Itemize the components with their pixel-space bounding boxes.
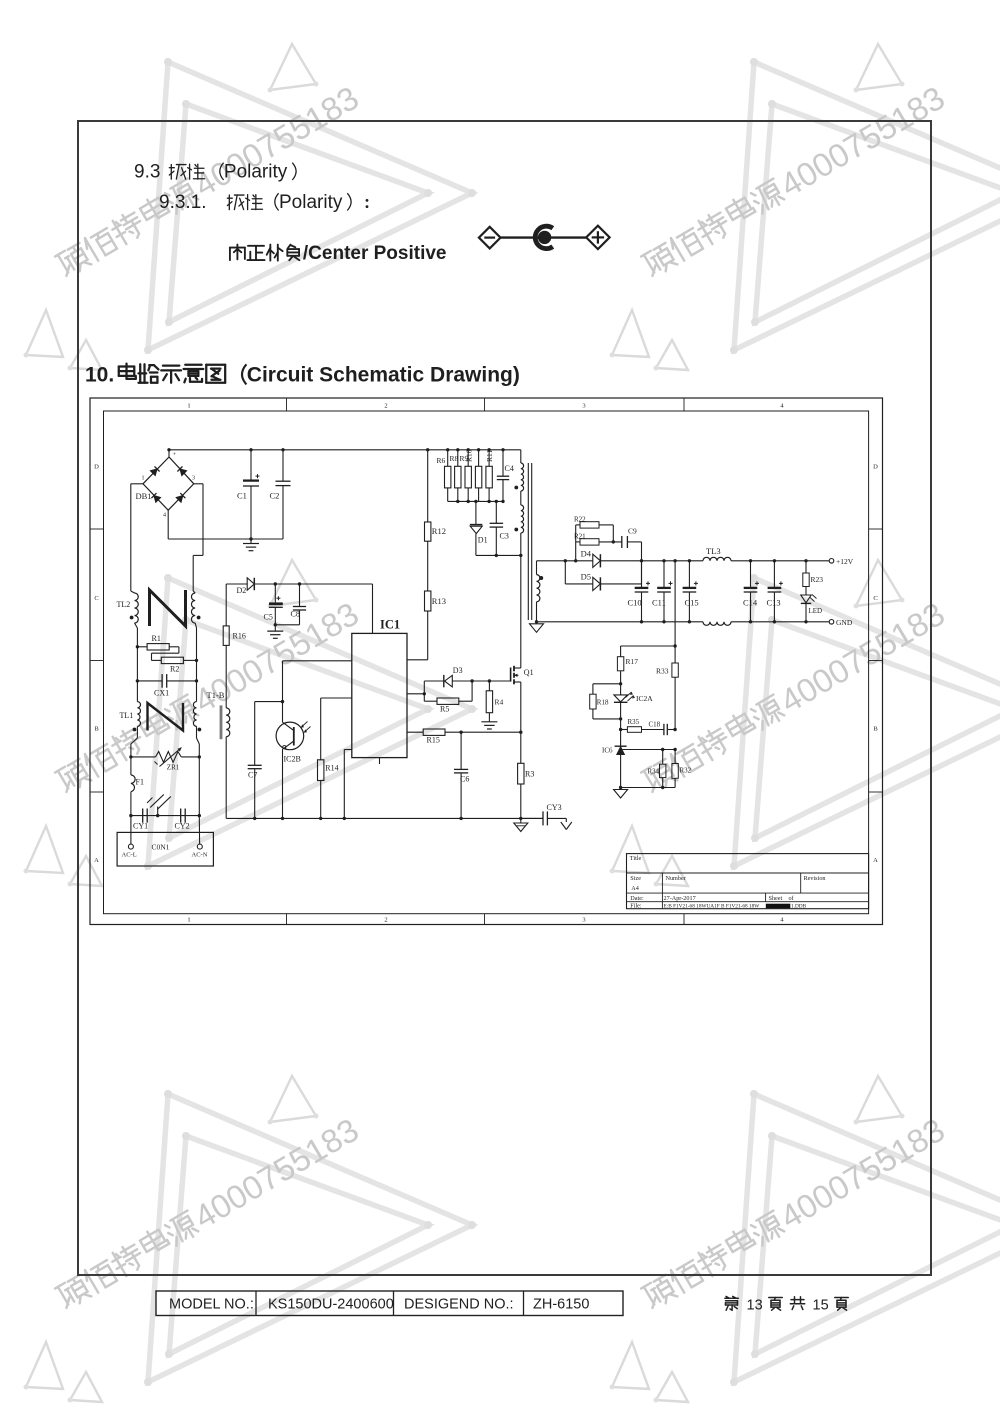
svg-text:4000755183: 4000755183 — [188, 1111, 365, 1236]
svg-text:of: of — [789, 895, 795, 902]
svg-text:C15: C15 — [685, 598, 699, 608]
svg-text:CY3: CY3 — [547, 803, 562, 812]
svg-text:Polarity: Polarity — [279, 192, 343, 213]
svg-text:C11: C11 — [652, 598, 666, 608]
svg-text:D2: D2 — [237, 586, 247, 595]
svg-text:2: 2 — [384, 402, 387, 409]
svg-text:Circuit Schematic Drawing): Circuit Schematic Drawing) — [247, 364, 520, 387]
svg-text:R15: R15 — [427, 736, 440, 745]
svg-text:+: + — [173, 451, 177, 458]
svg-text:4000755183: 4000755183 — [774, 1111, 951, 1236]
svg-text:R32: R32 — [680, 767, 692, 775]
svg-text:15: 15 — [813, 1298, 829, 1314]
svg-text:3: 3 — [582, 917, 585, 924]
svg-text:GND: GND — [836, 618, 853, 627]
svg-text:C14: C14 — [743, 598, 758, 608]
svg-text:Date:: Date: — [630, 895, 644, 902]
svg-text:F1: F1 — [136, 778, 144, 787]
svg-text:C10: C10 — [628, 598, 642, 608]
svg-text:AC-L: AC-L — [122, 852, 137, 859]
svg-text:CX1: CX1 — [154, 689, 169, 698]
svg-text:R13: R13 — [432, 596, 446, 606]
svg-text:D1: D1 — [478, 536, 488, 545]
svg-text:TL1: TL1 — [120, 711, 134, 720]
svg-text:R14: R14 — [325, 764, 338, 773]
svg-text:Sheet: Sheet — [769, 895, 783, 902]
svg-text:C2: C2 — [270, 491, 280, 501]
svg-text:D: D — [94, 463, 99, 470]
svg-text:Number: Number — [666, 875, 686, 882]
svg-text:C0N1: C0N1 — [152, 843, 170, 852]
svg-text:R5: R5 — [440, 705, 449, 714]
svg-text:R4: R4 — [495, 698, 504, 707]
svg-text:R2: R2 — [170, 665, 179, 674]
svg-text:A: A — [94, 857, 99, 864]
svg-text:C: C — [873, 595, 877, 602]
svg-text:R12: R12 — [432, 526, 446, 536]
svg-text:IC6: IC6 — [602, 747, 613, 755]
svg-text:R21: R21 — [574, 533, 586, 541]
svg-text:4000755183: 4000755183 — [774, 595, 951, 720]
svg-text:R33: R33 — [656, 667, 669, 676]
svg-text:3: 3 — [582, 402, 585, 409]
svg-text:C18: C18 — [649, 721, 661, 729]
svg-text:+12V: +12V — [836, 557, 854, 566]
svg-text:R16: R16 — [233, 632, 246, 641]
svg-text:LED: LED — [809, 607, 823, 615]
svg-text:13: 13 — [747, 1298, 763, 1314]
svg-text:9.3: 9.3 — [134, 162, 160, 183]
svg-text:1.DDB: 1.DDB — [791, 903, 807, 909]
svg-text:C9: C9 — [628, 527, 637, 536]
svg-text:B: B — [873, 725, 878, 732]
svg-text:1: 1 — [142, 476, 145, 482]
svg-text:R18: R18 — [597, 699, 609, 707]
svg-text:/Center Positive: /Center Positive — [303, 243, 447, 264]
svg-text:4: 4 — [163, 513, 166, 519]
svg-text:R1: R1 — [152, 634, 161, 643]
svg-text:R11: R11 — [485, 450, 494, 462]
svg-text:ZR1: ZR1 — [167, 764, 180, 772]
svg-text:C: C — [94, 595, 98, 602]
svg-text:4: 4 — [780, 917, 784, 924]
svg-text:D: D — [873, 463, 878, 470]
svg-text:D5: D5 — [581, 572, 591, 582]
svg-text:R6: R6 — [437, 456, 446, 465]
svg-text:C3: C3 — [500, 532, 509, 541]
svg-text:File:: File: — [630, 903, 642, 910]
svg-text:1: 1 — [187, 917, 190, 924]
svg-text:DESIGEND NO.:: DESIGEND NO.: — [404, 1297, 514, 1313]
svg-text:A4: A4 — [631, 885, 639, 892]
svg-text:D3: D3 — [453, 666, 463, 675]
svg-text:DB1: DB1 — [136, 491, 152, 501]
svg-text:Revision: Revision — [804, 875, 826, 882]
svg-text:Size: Size — [630, 875, 641, 882]
svg-text:R8: R8 — [450, 454, 459, 463]
svg-text:MODEL NO.:: MODEL NO.: — [169, 1297, 254, 1313]
svg-text:R34: R34 — [648, 768, 660, 776]
svg-text:4000755183: 4000755183 — [774, 79, 951, 204]
svg-text:IC2A: IC2A — [636, 694, 653, 703]
svg-text:C5: C5 — [264, 613, 273, 622]
svg-text:R3: R3 — [525, 770, 534, 779]
svg-text:KS150DU-2400600: KS150DU-2400600 — [268, 1297, 394, 1313]
svg-text:C4: C4 — [505, 464, 514, 473]
svg-text:TL2: TL2 — [117, 600, 131, 609]
svg-text:Q1: Q1 — [524, 668, 534, 677]
svg-text:C1: C1 — [237, 491, 247, 501]
svg-text:R23: R23 — [811, 575, 824, 584]
svg-text:CY1: CY1 — [133, 822, 148, 831]
svg-text:C8: C8 — [291, 610, 300, 619]
svg-text:4: 4 — [780, 402, 784, 409]
svg-text:TL3: TL3 — [706, 546, 721, 556]
svg-text:ZH-6150: ZH-6150 — [533, 1297, 589, 1313]
svg-text:IC1: IC1 — [380, 618, 400, 632]
svg-text:Polarity: Polarity — [224, 162, 288, 183]
svg-text:IC2B: IC2B — [284, 755, 301, 764]
svg-text:R17: R17 — [626, 657, 639, 666]
svg-text:3: 3 — [192, 476, 195, 482]
svg-text:T1-B: T1-B — [207, 690, 225, 700]
svg-text:R35: R35 — [628, 718, 640, 726]
svg-text:9.3.1.: 9.3.1. — [159, 192, 207, 213]
svg-text:AC-N: AC-N — [192, 852, 208, 859]
svg-text:R10: R10 — [464, 449, 473, 462]
svg-text:CY2: CY2 — [175, 822, 190, 831]
svg-text:27-Apr-2017: 27-Apr-2017 — [664, 895, 696, 902]
svg-text:Title: Title — [630, 855, 642, 862]
svg-text:C6: C6 — [460, 775, 469, 784]
svg-text:1: 1 — [187, 402, 190, 409]
svg-text:4000755183: 4000755183 — [188, 79, 365, 204]
svg-text:E:B F1V21-68 18WUA1F B F1V21-6: E:B F1V21-68 18WUA1F B F1V21-68 18W — [664, 903, 760, 909]
svg-text:2: 2 — [384, 917, 387, 924]
svg-text:A: A — [873, 857, 878, 864]
svg-text:B: B — [94, 725, 99, 732]
svg-text:R22: R22 — [574, 516, 586, 524]
svg-text:C13: C13 — [767, 598, 781, 608]
svg-text:D4: D4 — [581, 549, 592, 559]
svg-text:10.: 10. — [85, 364, 114, 387]
svg-text:C7: C7 — [248, 771, 257, 780]
